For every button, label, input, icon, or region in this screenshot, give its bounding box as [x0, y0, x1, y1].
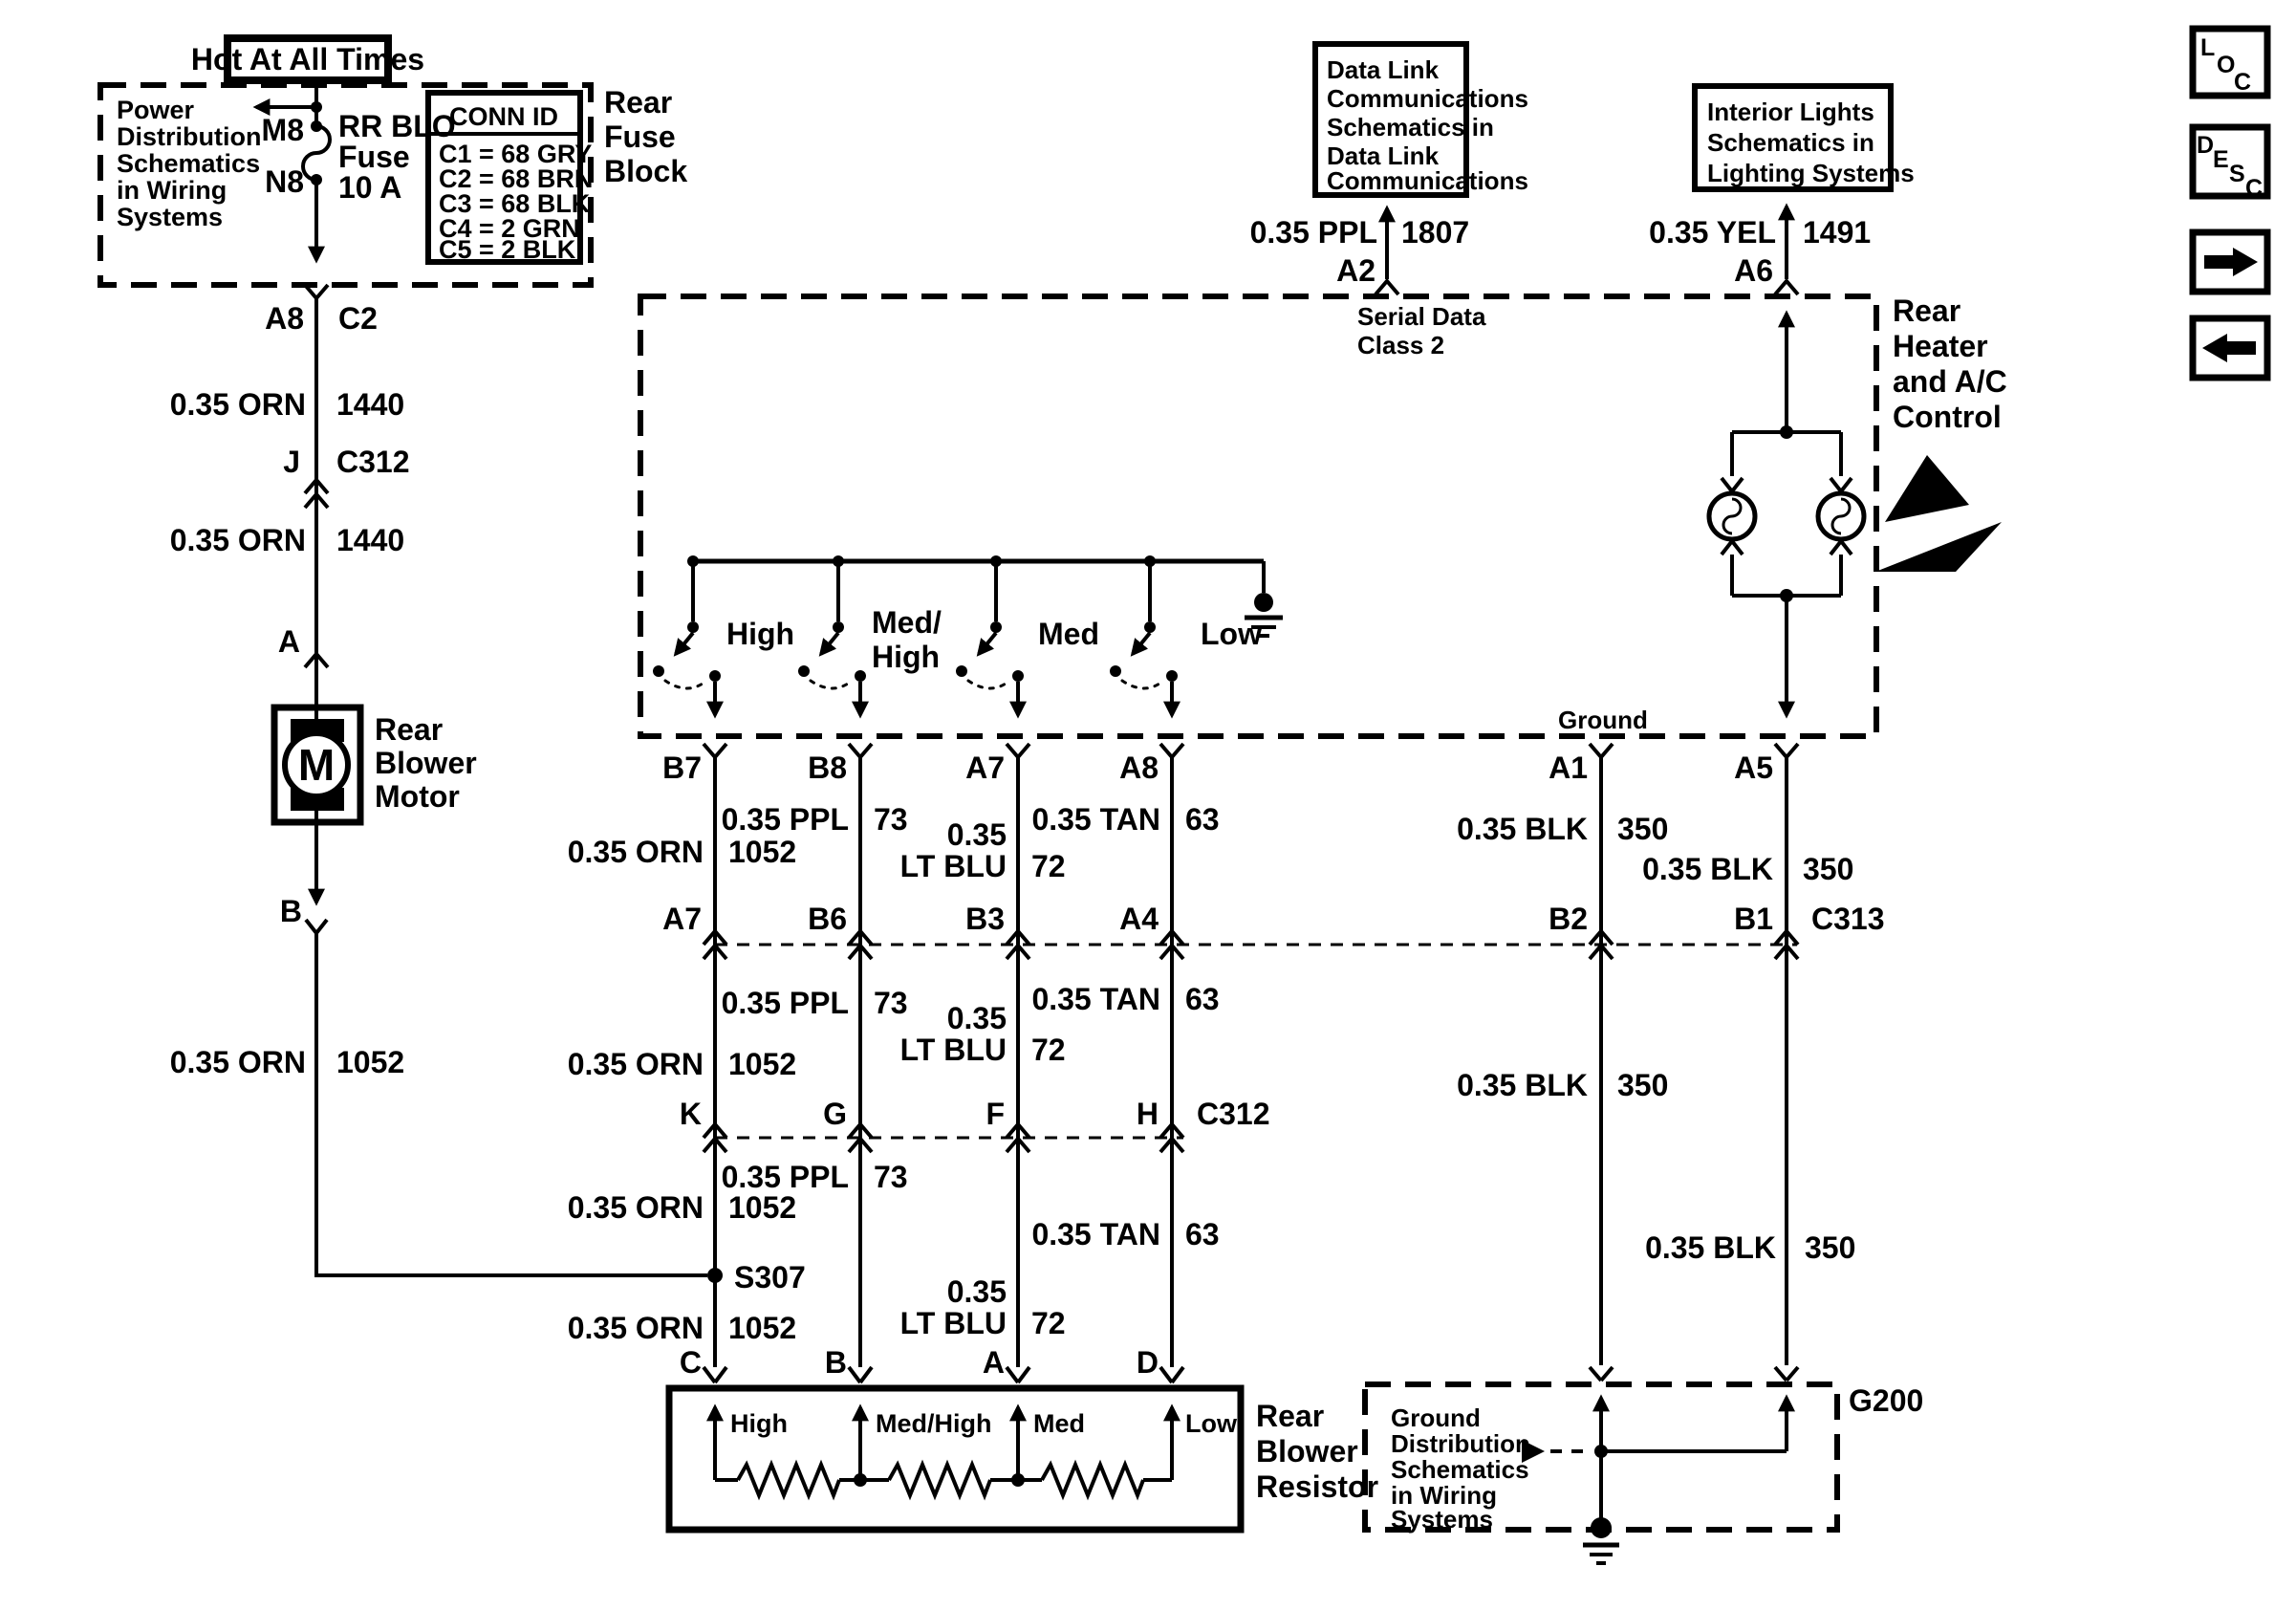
connector-chevron: [704, 744, 726, 757]
wire-label: 0.35 ORN: [170, 1045, 306, 1079]
serial-data-note: Class 2: [1357, 331, 1444, 359]
loc-letter: L: [2200, 34, 2215, 61]
wire-circuit: 72: [1031, 1033, 1066, 1067]
pin: G: [823, 1097, 847, 1131]
wire-label: LT BLU: [900, 1033, 1007, 1067]
ground-name: G200: [1849, 1383, 1923, 1418]
fuse-pin-m8: M8: [262, 113, 304, 147]
connector-chevron: [1007, 1367, 1029, 1382]
control-label: Control: [1893, 400, 2002, 434]
motor-label: Motor: [375, 779, 460, 814]
speed-label: Med: [1033, 1409, 1085, 1438]
pin: A4: [1119, 902, 1159, 936]
pin: B7: [662, 751, 702, 785]
pin-j: J: [283, 445, 300, 479]
rear-blower-motor-circuit: A8 C2 0.35 ORN 1440 J C312 0.35 ORN 1440…: [170, 285, 707, 1275]
connector-c313-row: A7 B6 B3 A4 B2 B1 C313: [662, 902, 1884, 959]
pin: B2: [1549, 902, 1588, 936]
fuse-block-label: Fuse: [604, 120, 676, 154]
conn-c312: C312: [336, 445, 410, 479]
pin: B: [825, 1345, 847, 1380]
wire-circuit: 63: [1185, 982, 1220, 1016]
control-label: and A/C: [1893, 364, 2007, 399]
wire-label: LT BLU: [900, 1306, 1007, 1340]
control-label: Rear: [1893, 294, 1960, 328]
loc-button[interactable]: L O C: [2193, 29, 2267, 96]
pin-a: A: [278, 624, 300, 659]
wire-label: 0.35 PPL: [722, 802, 849, 837]
switch-med-high: [798, 555, 866, 715]
ground-dist-note: Distribution: [1391, 1429, 1530, 1458]
conn-id-table: CONN ID C1 = 68 GRY C2 = 68 BRN C3 = 68 …: [428, 93, 593, 264]
wire-label: 0.35 PPL: [1250, 215, 1377, 250]
wire-circuit: 1052: [728, 1190, 796, 1225]
pin-a8: A8: [265, 301, 304, 336]
ground-dist-note: Schematics: [1391, 1455, 1529, 1484]
connector-chevron: [849, 1367, 872, 1382]
junction-dot: [1780, 425, 1793, 439]
wire-label: 0.35 BLK: [1457, 1068, 1588, 1102]
wire-circuit: 1491: [1803, 215, 1871, 250]
wire-label: LT BLU: [900, 849, 1007, 883]
interior-lights-ref: Schematics in: [1707, 128, 1874, 157]
switch-label: Low: [1201, 617, 1262, 651]
wire-label: 0.35 TAN: [1031, 982, 1160, 1016]
wire-circuit: 1052: [728, 835, 796, 869]
rear-fuse-block: Hot At All Times Power Distribution Sche…: [100, 38, 687, 285]
switch-label: Med/: [872, 605, 942, 640]
speed-label: Low: [1185, 1409, 1238, 1438]
power-dist-note: Power: [117, 96, 195, 124]
connector-name: C313: [1811, 902, 1885, 936]
connector-chevron: [1590, 1367, 1613, 1381]
connector-chevron: [306, 920, 327, 933]
wire-circuit: 350: [1617, 812, 1668, 846]
connector-chevron: [849, 744, 872, 757]
fuse-name: Fuse: [338, 140, 410, 174]
ground-icon: [1583, 1517, 1619, 1563]
lamp-icon: [1818, 432, 1864, 596]
ground-dist-note: Systems: [1391, 1505, 1493, 1534]
desc-letter: D: [2197, 132, 2214, 159]
wire-label: 0.35 ORN: [568, 835, 704, 869]
ground-pin-label: Ground: [1558, 706, 1648, 734]
speed-label: Med/High: [876, 1409, 992, 1438]
data-link-ref: Data Link: [1327, 55, 1440, 84]
wire-circuit: 350: [1803, 852, 1853, 886]
connector-chevron: [1775, 281, 1798, 294]
wire-circuit: 73: [874, 802, 908, 837]
wire-circuit: 1052: [728, 1047, 796, 1081]
serial-data-note: Serial Data: [1357, 302, 1486, 331]
wire-circuit: 1440: [336, 387, 404, 422]
resistor-label: Blower: [1256, 1434, 1358, 1469]
desc-button[interactable]: D E S C: [2193, 127, 2267, 202]
wire-circuit: 63: [1185, 802, 1220, 837]
pin: B8: [808, 751, 847, 785]
connector-chevron: [704, 1367, 726, 1382]
fuse-pin-n8: N8: [265, 164, 304, 199]
junction-dot: [854, 1473, 867, 1487]
control-dashed-box: [640, 296, 1876, 736]
prev-button[interactable]: [2193, 318, 2267, 378]
resistor-icon: [1042, 1465, 1143, 1495]
fuse-name: RR BLO: [338, 109, 456, 143]
lamp-icon: [1709, 432, 1755, 596]
wire-label: 0.35 BLK: [1642, 852, 1773, 886]
wire-circuit: 73: [874, 1160, 908, 1194]
motor-icon: M: [274, 707, 360, 822]
wire-circuit: 63: [1185, 1217, 1220, 1251]
connector-chevron: [1160, 744, 1183, 757]
pin: A7: [965, 751, 1005, 785]
fuse-name: 10 A: [338, 170, 401, 205]
wiring-diagram-page: Hot At All Times Power Distribution Sche…: [0, 0, 2296, 1610]
pin: D: [1137, 1345, 1159, 1380]
loc-letter: C: [2234, 69, 2251, 96]
wire-label: 0.35: [947, 817, 1007, 852]
rear-heater-ac-control: Rear Heater and A/C Control Data Link Co…: [640, 44, 2007, 736]
hot-label: Hot At All Times: [191, 42, 424, 76]
resistor-icon: [738, 1465, 839, 1495]
fuse-block-label: Block: [604, 154, 687, 188]
wire-label: 0.35 ORN: [568, 1190, 704, 1225]
connector-chevron: [1590, 744, 1613, 757]
pin: A8: [1119, 751, 1159, 785]
data-link-ref: Communications: [1327, 166, 1528, 195]
esd-sensitive-icon: [1875, 455, 2002, 572]
connector-chevron: [1160, 1367, 1183, 1382]
wire-label: 0.35 PPL: [722, 986, 849, 1020]
pin: C: [680, 1345, 702, 1380]
motor-label: Rear: [375, 712, 443, 747]
harness-columns: B7 B8 A7 A8 A1 A5 S307 0.35 ORN 1052 0.3…: [568, 744, 1885, 1382]
pin: B3: [965, 902, 1005, 936]
splice-label: S307: [734, 1260, 806, 1295]
conn-id-row: C5 = 2 BLK: [439, 235, 576, 264]
wire-label: 0.35 BLK: [1645, 1230, 1776, 1265]
wire-label: 0.35 YEL: [1649, 215, 1776, 250]
switch-low: [1110, 555, 1178, 715]
resistor-label: Resistor: [1256, 1469, 1378, 1504]
resistor-icon: [889, 1465, 990, 1495]
pin: A1: [1549, 751, 1588, 785]
data-link-ref: Communications: [1327, 84, 1528, 113]
connector-name: C312: [1197, 1097, 1270, 1131]
wire-circuit: 1440: [336, 523, 404, 557]
connector-chevron: [1007, 744, 1029, 757]
wire-circuit: 1807: [1401, 215, 1469, 250]
wire-label: 0.35 TAN: [1031, 1217, 1160, 1251]
control-label: Heater: [1893, 329, 1988, 363]
connector-chevron: [1775, 1367, 1798, 1381]
pin: H: [1137, 1097, 1159, 1131]
data-link-ref: Schematics in: [1327, 113, 1494, 141]
loc-letter: O: [2217, 52, 2235, 78]
wire-label: 0.35 PPL: [722, 1160, 849, 1194]
connector-c312-row: K G F H C312: [680, 1097, 1270, 1152]
wire-label: 0.35 ORN: [568, 1311, 704, 1345]
g200-ground-box: Ground Distribution Schematics in Wiring…: [1365, 1354, 1923, 1563]
switch-med: [956, 555, 1024, 715]
wire-circuit: 73: [874, 986, 908, 1020]
wire-circuit: 72: [1031, 849, 1066, 883]
switch-label: High: [872, 640, 940, 674]
pin: A5: [1734, 751, 1773, 785]
wire-label: 0.35: [947, 1274, 1007, 1309]
pin: B1: [1734, 902, 1773, 936]
wire-circuit: 350: [1617, 1068, 1668, 1102]
desc-letter: E: [2213, 146, 2229, 173]
interior-lights-ref: Lighting Systems: [1707, 159, 1915, 187]
wire-circuit: 1052: [336, 1045, 404, 1079]
wire-label: 0.35 ORN: [170, 523, 306, 557]
motor-label: Blower: [375, 746, 477, 780]
desc-letter: S: [2229, 161, 2245, 187]
wire-circuit: 72: [1031, 1306, 1066, 1340]
pin-a6: A6: [1734, 253, 1773, 288]
wire-circuit: 1052: [728, 1311, 796, 1345]
conn-id-title: CONN ID: [449, 102, 558, 131]
pin: A: [983, 1345, 1005, 1380]
connector-chevron: [1775, 744, 1798, 757]
pin: F: [986, 1097, 1005, 1131]
pin-a2: A2: [1336, 253, 1375, 288]
conn-c2: C2: [338, 301, 378, 336]
blower-switch-bank: High Med/ High Med Low: [653, 555, 1283, 715]
pin-b: B: [280, 894, 302, 928]
switch-label: High: [726, 617, 794, 651]
wire-label: 0.35 BLK: [1457, 812, 1588, 846]
wire-circuit: 350: [1805, 1230, 1855, 1265]
wire-label: 0.35 ORN: [170, 387, 306, 422]
power-dist-note: in Wiring: [117, 176, 227, 205]
pin: K: [680, 1097, 702, 1131]
interior-lights-ref: Interior Lights: [1707, 98, 1874, 126]
next-button[interactable]: [2193, 232, 2267, 292]
fuse-icon: [303, 126, 330, 180]
power-dist-note: Distribution: [117, 122, 261, 151]
speed-label: High: [730, 1409, 788, 1438]
left-arrow-icon: [2202, 334, 2256, 362]
ref-arrow-icon: [1522, 1440, 1545, 1463]
wire-label: 0.35 ORN: [568, 1047, 704, 1081]
rear-blower-resistor: High Med/High Med Low Rear Blower Resist…: [669, 1388, 1378, 1530]
connector-chevron: [1375, 281, 1398, 294]
fuse-block-label: Rear: [604, 85, 672, 120]
ground-dist-note: Ground: [1391, 1403, 1481, 1432]
junction-dot: [1011, 1473, 1025, 1487]
wire-label: 0.35: [947, 1001, 1007, 1035]
right-arrow-icon: [2204, 248, 2258, 276]
pin: B6: [808, 902, 847, 936]
page-nav: L O C D E S C: [2193, 29, 2267, 378]
serial-data-branch: Data Link Communications Schematics in D…: [1250, 44, 1528, 359]
resistor-label: Rear: [1256, 1399, 1324, 1433]
switch-high: [653, 555, 721, 715]
splice-dot: [707, 1268, 723, 1283]
switch-label: Med: [1038, 617, 1099, 651]
wire-label: 0.35 TAN: [1031, 802, 1160, 837]
diagram-canvas: Hot At All Times Power Distribution Sche…: [0, 0, 2296, 1610]
desc-letter: C: [2245, 175, 2263, 202]
power-dist-note: Systems: [117, 203, 223, 231]
motor-letter: M: [298, 740, 335, 790]
pin: A7: [662, 902, 702, 936]
power-dist-note: Schematics: [117, 149, 260, 178]
